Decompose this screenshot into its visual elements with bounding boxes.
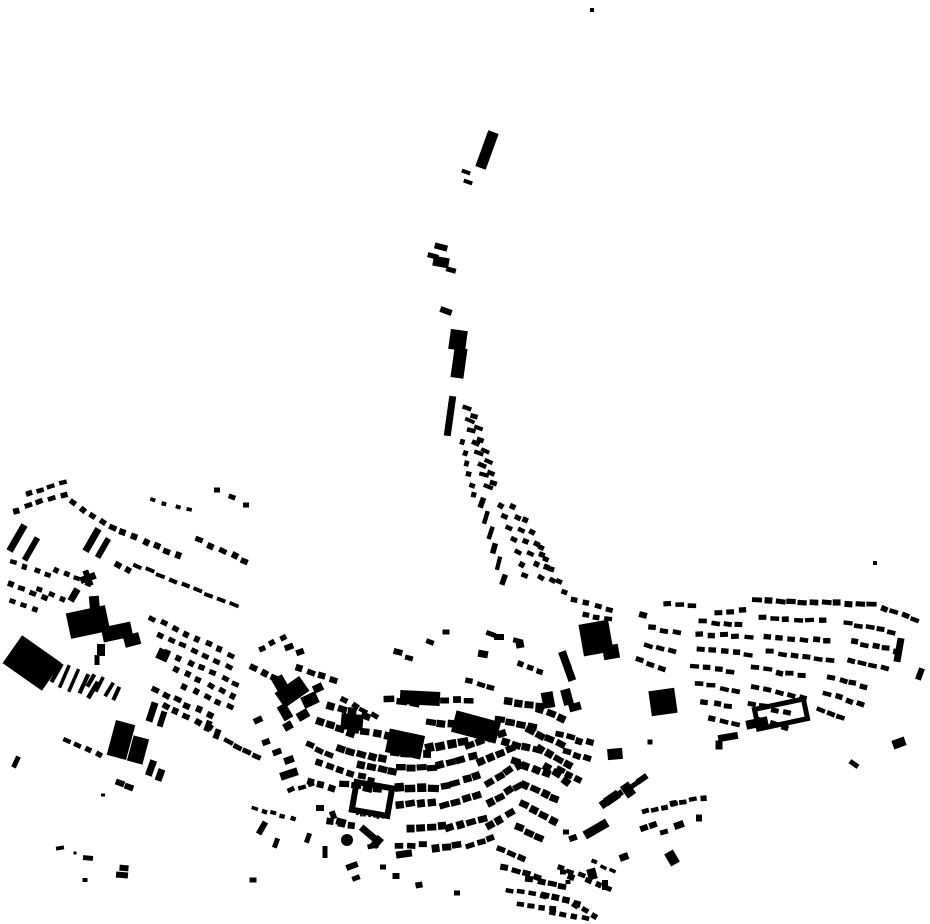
building — [406, 825, 414, 833]
building — [695, 631, 703, 637]
building — [407, 843, 416, 849]
building — [419, 841, 427, 847]
building — [797, 600, 807, 606]
figure-ground-map — [0, 0, 930, 924]
building — [427, 824, 437, 831]
building — [454, 891, 460, 896]
building — [443, 630, 450, 635]
town-hall-block — [400, 690, 441, 706]
building — [427, 765, 437, 772]
building — [695, 681, 704, 686]
building — [415, 881, 423, 888]
building — [790, 652, 798, 658]
building — [775, 635, 783, 641]
building — [347, 822, 355, 830]
building — [431, 844, 440, 853]
building — [514, 699, 523, 707]
building — [744, 635, 753, 640]
building — [810, 599, 819, 605]
building — [794, 618, 803, 623]
building — [372, 729, 382, 738]
building — [436, 720, 446, 728]
building — [214, 488, 220, 493]
building — [696, 815, 702, 822]
building — [464, 698, 474, 704]
building — [396, 764, 406, 770]
building — [406, 765, 415, 772]
building — [733, 649, 741, 655]
building — [731, 634, 739, 639]
building — [708, 633, 715, 639]
building — [566, 880, 571, 884]
building — [734, 622, 742, 627]
building — [805, 618, 814, 623]
building — [855, 601, 865, 607]
building — [663, 601, 671, 607]
building — [715, 666, 723, 672]
building — [679, 799, 687, 805]
building — [675, 602, 684, 607]
building — [323, 846, 328, 858]
building — [726, 669, 735, 675]
building — [739, 607, 747, 613]
building — [703, 664, 711, 670]
building — [851, 638, 859, 645]
building — [690, 664, 699, 669]
east-large-building — [602, 644, 620, 661]
building — [848, 679, 856, 685]
building — [427, 798, 436, 806]
building — [453, 696, 461, 703]
building — [763, 634, 771, 640]
building — [714, 610, 722, 615]
building — [764, 597, 772, 604]
building — [428, 785, 439, 793]
building — [882, 645, 890, 651]
building — [243, 503, 249, 508]
building — [417, 783, 426, 792]
building — [326, 818, 334, 826]
building — [527, 903, 535, 909]
building — [825, 657, 834, 663]
city-map-svg — [0, 0, 930, 924]
building — [524, 701, 534, 709]
town-hall-block — [340, 713, 363, 731]
building — [699, 618, 707, 623]
building — [844, 601, 852, 608]
building — [786, 599, 796, 605]
building — [250, 878, 257, 883]
building — [503, 697, 512, 706]
building — [802, 654, 811, 660]
building — [700, 795, 707, 801]
building — [716, 741, 723, 750]
building — [442, 843, 452, 851]
building — [607, 748, 623, 760]
building — [416, 764, 426, 771]
building — [83, 855, 93, 861]
building — [873, 561, 877, 565]
building — [721, 648, 729, 654]
building — [447, 739, 458, 749]
building — [782, 616, 789, 622]
building — [696, 646, 704, 652]
building — [590, 8, 594, 12]
building — [720, 632, 728, 637]
building — [394, 783, 404, 792]
building — [393, 873, 400, 879]
building — [752, 597, 762, 602]
building — [395, 801, 404, 809]
building — [395, 843, 404, 849]
building — [726, 609, 734, 614]
building — [706, 683, 715, 688]
building — [339, 781, 349, 788]
building — [74, 852, 77, 855]
building — [866, 602, 876, 607]
monastery-complex — [97, 644, 105, 656]
east-square-building — [648, 688, 677, 716]
building — [116, 871, 128, 878]
building — [648, 624, 656, 630]
building — [563, 830, 569, 835]
building — [766, 649, 774, 654]
building — [759, 615, 767, 620]
building — [119, 865, 128, 872]
building — [833, 599, 841, 605]
building — [751, 664, 760, 670]
building — [708, 647, 716, 653]
building — [440, 697, 449, 703]
building — [417, 799, 426, 808]
building — [770, 616, 779, 621]
building — [538, 905, 545, 911]
building — [383, 696, 394, 703]
building — [785, 671, 793, 676]
building — [724, 703, 733, 709]
building — [451, 841, 461, 849]
building — [688, 603, 697, 608]
building — [405, 785, 416, 793]
building — [416, 824, 425, 832]
building — [83, 878, 88, 882]
building — [823, 638, 830, 644]
building — [380, 865, 386, 870]
building — [592, 614, 599, 620]
building — [876, 626, 885, 632]
building — [813, 636, 820, 642]
building — [525, 876, 534, 883]
monastery-complex — [95, 655, 100, 665]
building — [787, 636, 795, 642]
round-tower — [341, 834, 353, 846]
building — [516, 901, 524, 907]
building — [316, 805, 324, 811]
building — [797, 673, 805, 678]
building — [700, 699, 708, 705]
building — [819, 617, 826, 622]
building — [101, 794, 105, 797]
building — [822, 599, 832, 605]
building — [648, 740, 653, 745]
